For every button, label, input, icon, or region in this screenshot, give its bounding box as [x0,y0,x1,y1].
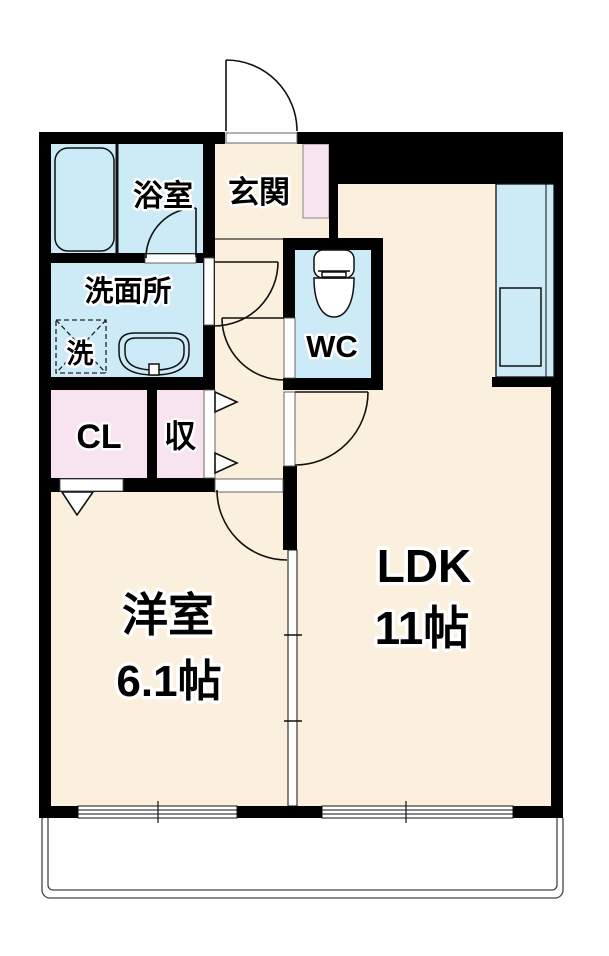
entrance-door [226,60,297,131]
wall-hall-wc [283,250,295,318]
wall-bottom-3 [513,806,563,818]
wall-hall-bottom [283,466,297,550]
kitchen-counter [496,184,554,377]
wall-left [39,132,51,818]
shoe-cabinet [303,144,329,218]
wall-wc-top [283,238,383,250]
western-room-label: 洋室 [122,589,214,641]
wall-top-right [297,132,563,144]
ldk-label: LDK [377,540,472,592]
bath-door-opening [145,254,196,263]
washroom-label: 洗面所 [84,275,171,308]
washer-label: 洗 [67,339,94,369]
wc-door-opening [284,318,295,378]
wc-label: WC [306,329,358,364]
washroom-door-opening [204,258,214,325]
balcony-fence-outer [42,812,563,898]
floorplan-drawing: 浴室 玄関 洗面所 洗 WC CL 収 洋室 6.1帖 LDK 11帖 [0,0,609,956]
wall-bottom-1 [39,806,78,818]
wall-bottom-2 [237,806,322,818]
faucet [149,364,159,375]
balcony [42,812,563,898]
wall-top-band [329,144,563,184]
bath-label: 浴室 [133,179,193,213]
wall-wc-right [371,250,383,378]
balcony-fence-inner [48,812,557,890]
western-room-area: 6.1帖 [116,657,221,706]
ldk-door-opening [284,392,295,466]
floorplan: 浴室 玄関 洗面所 洗 WC CL 収 洋室 6.1帖 LDK 11帖 [0,0,609,956]
storage-door-strip [204,390,215,478]
wall-kitchen-base [492,377,563,387]
wall-top-left [39,132,225,144]
ldk-area: 11帖 [375,602,470,654]
wall-entrance-stub [329,184,338,238]
entrance-threshold [226,133,297,143]
toilet-icon [314,250,354,317]
closet-label: CL [76,418,121,456]
wall-wc-bottom [283,378,383,390]
bedroom-door-threshold [215,479,283,492]
closet-door-opening [60,479,123,491]
partition-track [288,550,297,806]
wall-washroom-bottom [39,377,215,390]
wall-closet-divider [147,390,157,480]
entrance-label: 玄関 [228,175,290,210]
storage-label: 収 [164,418,196,454]
